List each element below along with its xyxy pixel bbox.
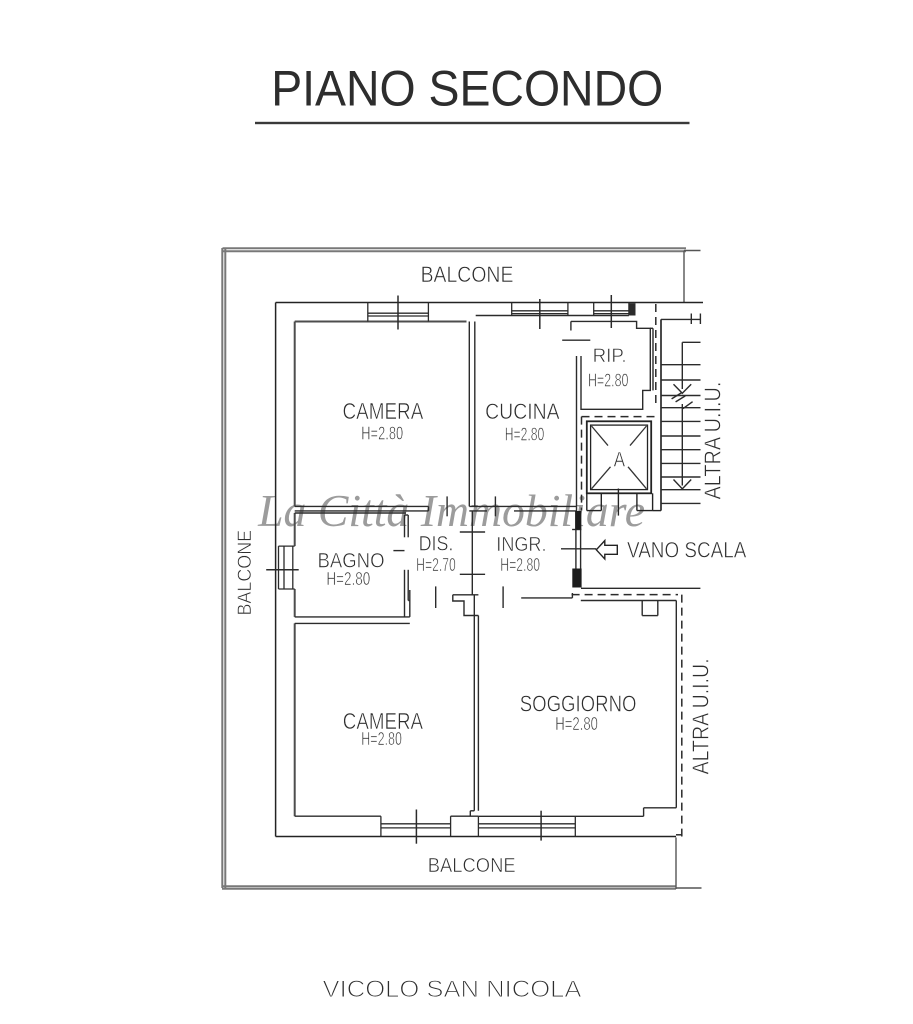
svg-text:VANO SCALA: VANO SCALA xyxy=(627,538,747,563)
svg-text:BALCONE: BALCONE xyxy=(428,855,516,877)
svg-text:INGR.: INGR. xyxy=(496,533,546,556)
svg-text:SOGGIORNO: SOGGIORNO xyxy=(520,691,637,717)
svg-text:VICOLO SAN NICOLA: VICOLO SAN NICOLA xyxy=(323,976,583,1003)
svg-text:H=2.80: H=2.80 xyxy=(505,425,545,445)
svg-text:H=2.80: H=2.80 xyxy=(555,714,598,734)
svg-text:H=2.80: H=2.80 xyxy=(361,423,403,443)
svg-text:DIS.: DIS. xyxy=(419,533,454,556)
svg-text:H=2.70: H=2.70 xyxy=(416,555,456,575)
svg-text:H=2.80: H=2.80 xyxy=(500,555,540,575)
svg-text:H=2.80: H=2.80 xyxy=(326,569,370,589)
svg-text:RIP.: RIP. xyxy=(593,346,627,367)
svg-text:CUCINA: CUCINA xyxy=(485,399,560,424)
svg-text:CAMERA: CAMERA xyxy=(343,398,424,424)
svg-text:H=2.80: H=2.80 xyxy=(588,371,629,391)
svg-text:PIANO SECONDO: PIANO SECONDO xyxy=(271,61,663,117)
svg-text:ALTRA U.I.U.: ALTRA U.I.U. xyxy=(699,382,725,500)
svg-text:BALCONE: BALCONE xyxy=(421,262,514,287)
svg-text:ALTRA U.I.U.: ALTRA U.I.U. xyxy=(688,658,714,774)
svg-text:A: A xyxy=(614,448,626,471)
svg-text:BALCONE: BALCONE xyxy=(234,530,256,616)
svg-text:H=2.80: H=2.80 xyxy=(361,729,402,749)
